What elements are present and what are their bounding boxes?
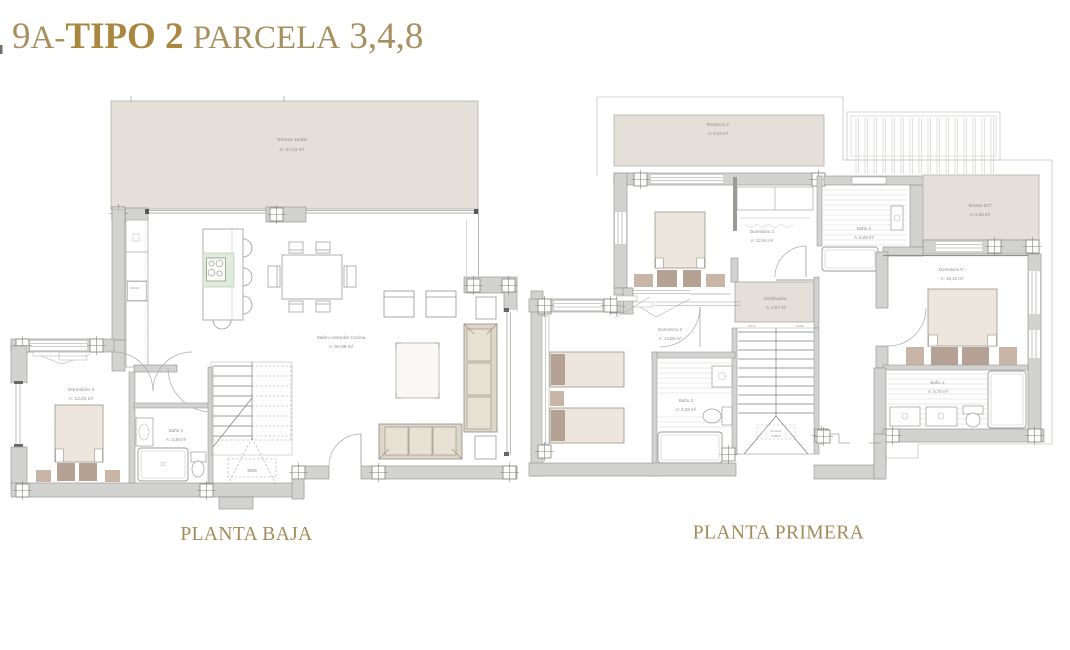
svg-text:Baño 4: Baño 4 <box>169 428 183 433</box>
svg-text:BAJADA: BAJADA <box>771 429 782 433</box>
svg-text:Baño 1:: Baño 1: <box>930 380 945 385</box>
svg-text:PLANTA PRIMERA: PLANTA PRIMERA <box>693 523 864 544</box>
svg-text:A: 3,38 m²: A: 3,38 m² <box>166 437 187 442</box>
svg-text:A: 12,01 m²: A: 12,01 m² <box>69 396 94 402</box>
svg-text:Terraza D.2:: Terraza D.2: <box>706 122 730 127</box>
svg-text:A: 5,70 m²: A: 5,70 m² <box>928 389 949 394</box>
svg-text:A: 27,01 m²: A: 27,01 m² <box>280 147 305 153</box>
svg-text:SUBIDA: SUBIDA <box>771 434 782 438</box>
svg-text:A: 5,50 m²: A: 5,50 m² <box>970 212 991 217</box>
svg-text:Baño 2: Baño 2 <box>857 226 871 231</box>
svg-text:Dormitorio 3: Dormitorio 3 <box>658 327 682 332</box>
svg-text:SUBE: SUBE <box>796 324 804 328</box>
svg-text:A: 50,88 m²: A: 50,88 m² <box>329 344 354 350</box>
svg-text:A: 16,12 m²: A: 16,12 m² <box>941 276 964 281</box>
svg-text:A: 5,33 m²: A: 5,33 m² <box>676 407 697 412</box>
svg-text:Baño 3: Baño 3 <box>679 398 693 403</box>
svg-text:Distribuidor:: Distribuidor: <box>764 296 787 301</box>
svg-text:A: 9,34 m²: A: 9,34 m² <box>708 131 729 136</box>
svg-text:Dormitorio 4: Dormitorio 4 <box>68 387 94 393</box>
svg-text:Terraza D1ª:: Terraza D1ª: <box>968 203 992 208</box>
svg-text:A: 2,57 m²: A: 2,57 m² <box>766 305 787 310</box>
svg-text:Salón-comedor Cocina: Salón-comedor Cocina <box>317 335 366 341</box>
svg-text:Terraza Jardín: Terraza Jardín <box>277 137 308 143</box>
svg-text:A: 12,94 m²: A: 12,94 m² <box>751 238 774 243</box>
svg-text:A: 5,06 m²: A: 5,06 m² <box>854 235 875 240</box>
svg-text:3605: 3605 <box>247 468 257 473</box>
svg-text:BAJA: BAJA <box>749 324 756 328</box>
svg-text:Dormitorio 2: Dormitorio 2 <box>750 229 774 234</box>
svg-text:Dormitorio P.:: Dormitorio P.: <box>939 267 965 272</box>
svg-text:9A-TIPO 2 PARCELA 3,4,8: 9A-TIPO 2 PARCELA 3,4,8 <box>12 16 423 57</box>
svg-text:PLANTA BAJA: PLANTA BAJA <box>180 524 312 545</box>
svg-text:A: 14,86 m²: A: 14,86 m² <box>659 336 682 341</box>
